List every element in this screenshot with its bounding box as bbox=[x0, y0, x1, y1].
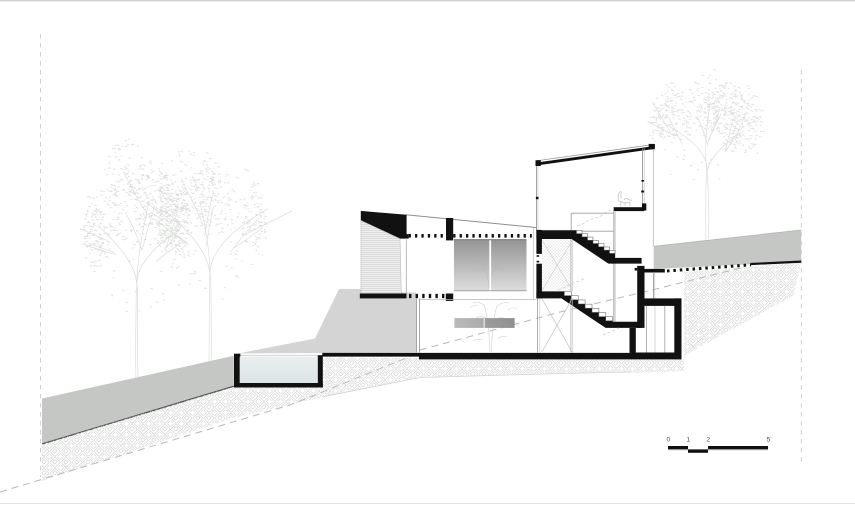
svg-text:5: 5 bbox=[766, 437, 770, 444]
svg-text:0: 0 bbox=[666, 437, 670, 444]
svg-text:1: 1 bbox=[686, 437, 690, 444]
svg-text:2: 2 bbox=[706, 437, 710, 444]
